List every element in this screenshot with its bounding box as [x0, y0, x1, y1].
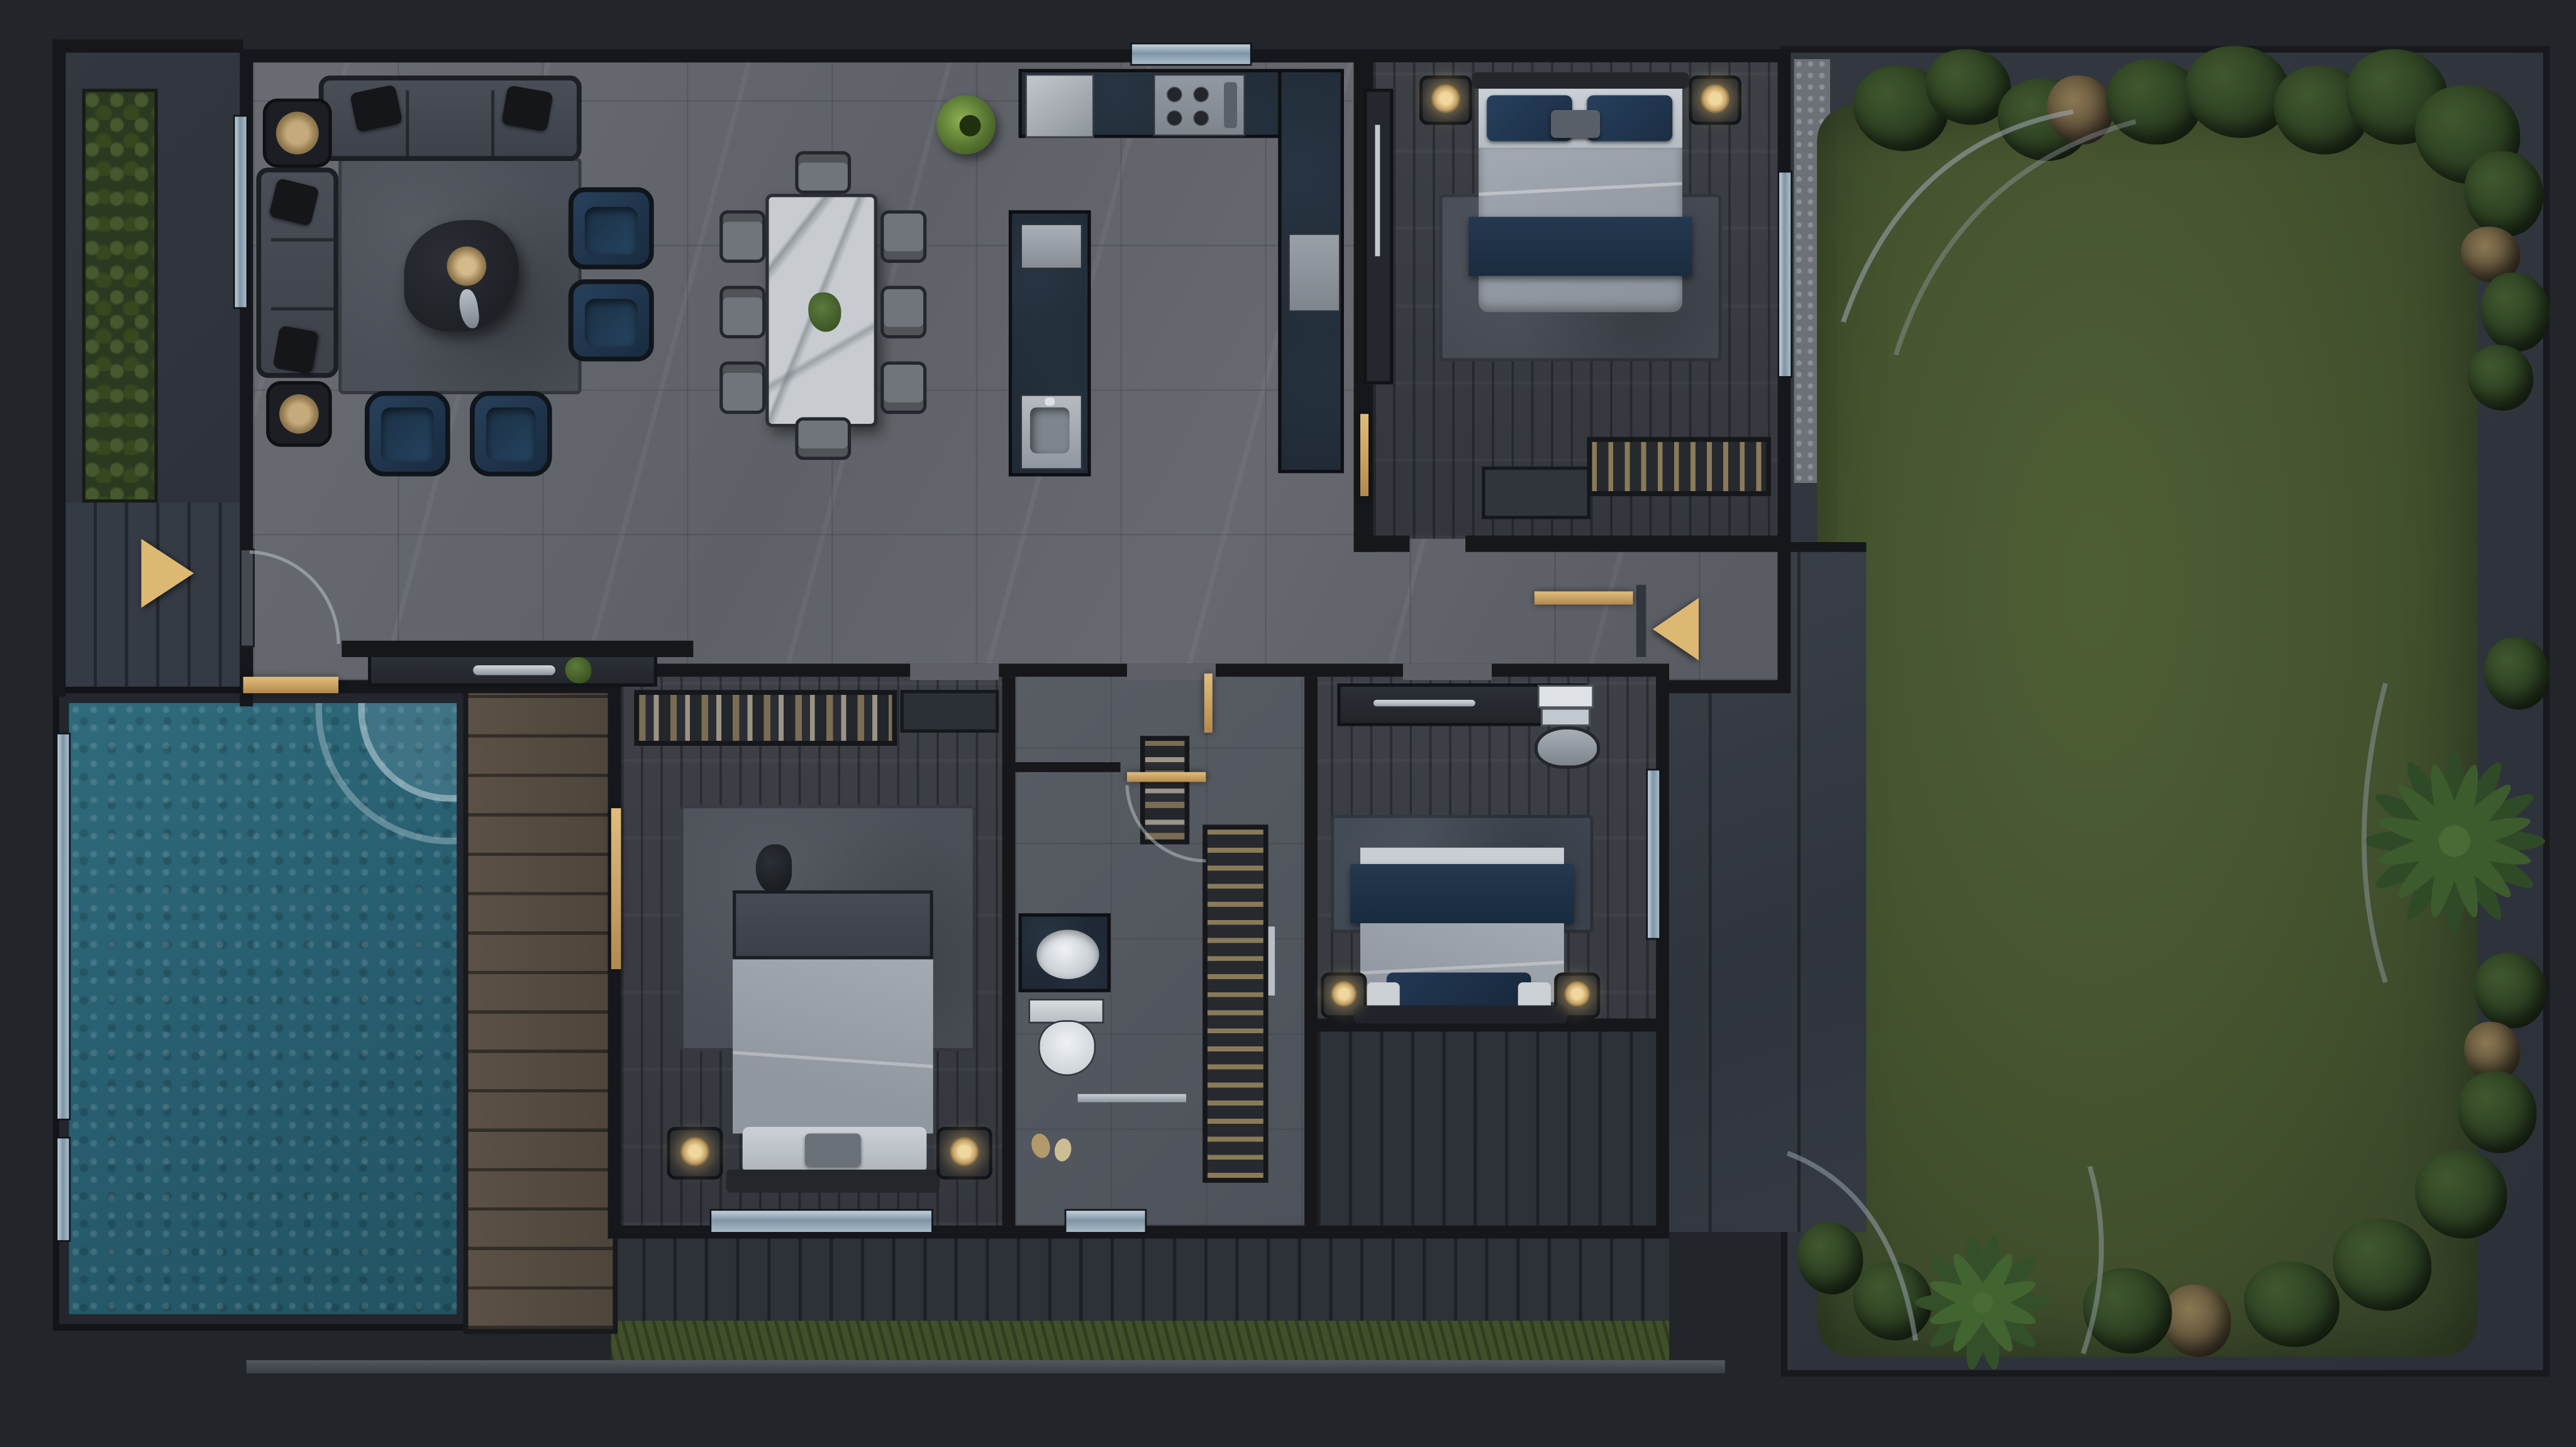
bathroom-window-icon — [1065, 1209, 1147, 1234]
side-threshold-gold — [1535, 591, 1633, 604]
dining-chair — [719, 210, 765, 263]
lamp-lit-icon — [1701, 84, 1730, 113]
bedroom-right-door-opening — [1403, 663, 1492, 680]
brass-tray-icon — [276, 112, 319, 155]
bath-bed-wall — [1304, 677, 1318, 1225]
pool-wall-window2-icon — [56, 1137, 71, 1242]
floor-plan-canvas — [0, 0, 2576, 1447]
side-entry-arrow-icon — [1653, 598, 1699, 660]
dining-table-marble — [765, 194, 877, 427]
closet-door-gold — [1204, 674, 1213, 733]
bedroom-top-south-wall — [1465, 536, 1790, 552]
terrace-door-opening — [1636, 585, 1646, 657]
side-table — [266, 381, 331, 446]
brass-bowl-icon — [447, 247, 487, 286]
fan-palm-icon — [1909, 1229, 2057, 1377]
kitchen-window-icon — [1130, 43, 1252, 66]
vanity — [1019, 913, 1111, 992]
bed-pillow-zone — [1479, 89, 1682, 148]
dining-chair — [719, 362, 765, 414]
closet-hanging-clothes-v — [1140, 736, 1189, 844]
slatted-cabinet — [1202, 824, 1268, 1182]
dining-chair — [880, 286, 926, 339]
armchair-navy — [569, 279, 654, 362]
throw-pillow — [350, 84, 403, 133]
dining-chair — [880, 210, 926, 263]
timber-deck — [464, 684, 618, 1334]
bed-runner-navy — [1350, 864, 1574, 923]
lamp-lit-icon — [1431, 84, 1460, 113]
bed-headboard — [726, 1170, 940, 1193]
bathroom-inner-wall — [1015, 762, 1120, 772]
terrace-joint — [1797, 552, 1801, 1232]
living-window-icon — [233, 115, 248, 309]
sofa-corner-section — [257, 167, 339, 377]
open-wardrobe-hanging-clothes — [634, 690, 897, 746]
wardrobe-shelf — [901, 690, 999, 733]
palm-plant-icon — [2356, 743, 2553, 940]
lamp-lit-icon — [1564, 981, 1591, 1007]
console-plant-icon — [565, 657, 592, 684]
kitchen-counter-right — [1278, 69, 1343, 474]
kitchen-island — [1009, 210, 1091, 476]
bed-runner-navy — [1468, 217, 1692, 276]
shower-strip-chrome — [1078, 1094, 1186, 1102]
dining-chair — [880, 362, 926, 414]
console-handle-icon — [473, 665, 555, 675]
bedroom-window-icon — [709, 1209, 933, 1234]
rear-grass-strip — [611, 1321, 1669, 1360]
top-left-boundary-wall — [53, 40, 243, 53]
pool-water — [69, 703, 457, 1314]
bedroom-right-terrace — [1318, 1031, 1656, 1225]
pool-wall-window-icon — [56, 733, 71, 1120]
pillow-gray — [805, 1133, 861, 1166]
entry-jamb-wall — [240, 641, 253, 706]
lamp-lit-icon — [1331, 981, 1357, 1007]
wardrobe-panel — [1363, 89, 1393, 384]
bed-duvet — [733, 960, 933, 1134]
bedroom-window-icon — [1646, 769, 1661, 940]
armchair-navy — [569, 187, 654, 270]
cabinet-handle-icon — [1269, 926, 1275, 995]
desk-papers — [1541, 708, 1590, 726]
brass-tray-icon — [279, 394, 319, 434]
table-plant-icon — [808, 292, 841, 332]
entry-arrow-icon — [142, 539, 194, 608]
toilet-bowl-icon — [1038, 1020, 1096, 1076]
entry-wall — [341, 641, 693, 657]
green-bowl-decor — [936, 96, 996, 155]
bedroom-left-door-opening — [910, 663, 999, 680]
slatted-bench — [1587, 437, 1771, 496]
desk-papers — [1538, 685, 1594, 708]
patio-door-gold — [611, 808, 621, 969]
bed-headboard — [1353, 1006, 1567, 1024]
ottoman-navy — [365, 391, 450, 477]
bedroom-top-south-wall — [1353, 536, 1409, 552]
left-boundary-wall — [53, 40, 66, 697]
throw-pillow — [501, 85, 553, 131]
desk-chair — [1535, 726, 1600, 769]
island-board — [1020, 223, 1082, 269]
oval-basin-icon — [1036, 930, 1099, 979]
rear-curb — [247, 1360, 1725, 1373]
faucet-icon — [1045, 397, 1055, 406]
lamp-lit-icon — [950, 1137, 979, 1167]
lawn — [1817, 105, 2477, 1357]
desk-pen-icon — [1374, 700, 1475, 706]
bed-headboard — [1472, 72, 1689, 89]
wardrobe-handle-icon — [1375, 125, 1380, 257]
floor-plant-dark — [756, 845, 792, 894]
fridge — [1025, 74, 1094, 138]
pillow-gray — [1551, 110, 1600, 138]
entry-door-leaf — [240, 548, 255, 647]
ottoman-navy — [470, 391, 552, 477]
bed-foot-blanket — [733, 890, 933, 960]
entry-threshold-gold — [243, 677, 339, 693]
decor-object — [457, 288, 480, 330]
bathroom-door-leaf-gold — [1127, 772, 1206, 782]
bathroom-door-opening — [1127, 663, 1216, 680]
bed-bath-wall — [1002, 677, 1015, 1225]
dresser — [1482, 467, 1590, 519]
dining-chair-head — [795, 151, 851, 194]
side-table — [263, 99, 332, 168]
pool-step-arc-outer — [316, 703, 457, 845]
dining-chair-head — [795, 418, 851, 460]
throw-pillow — [269, 178, 319, 226]
pool-coping — [53, 687, 474, 1331]
bedroom-window-icon — [1777, 171, 1792, 378]
kitchen-sink — [1020, 394, 1082, 470]
throw-pillow — [272, 326, 319, 375]
sofa-three-seat — [319, 75, 582, 161]
bedroom-door-gold — [1360, 414, 1368, 496]
hedge-strip — [82, 89, 158, 502]
cooktop — [1153, 74, 1245, 136]
cutting-board — [1288, 233, 1341, 312]
bed-pillow-zone — [743, 1127, 927, 1173]
dining-chair — [719, 286, 765, 339]
lamp-lit-icon — [680, 1137, 709, 1167]
